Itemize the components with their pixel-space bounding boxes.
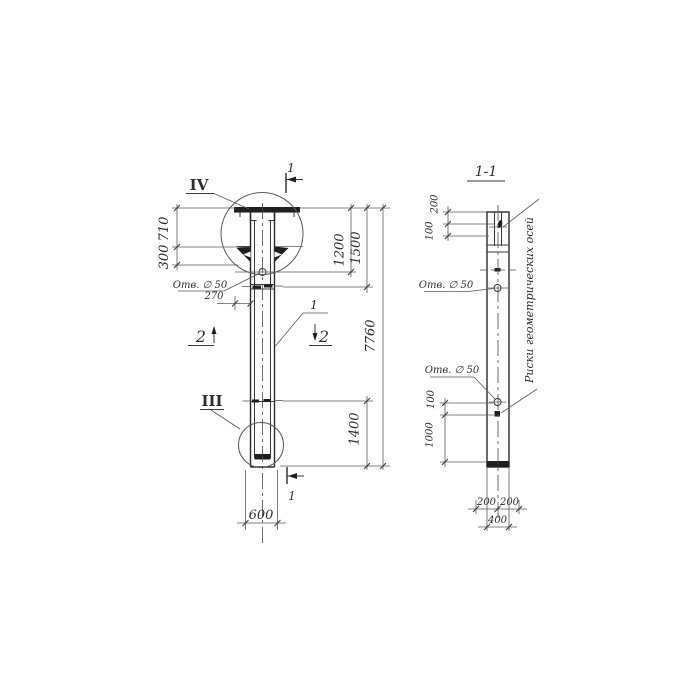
dim-1200-text: 1200 [333, 233, 348, 266]
dim-1000-text: 1000 [425, 422, 436, 448]
detail-iii-text: III [201, 392, 222, 410]
dim-300-text: 300 [157, 245, 172, 270]
section-mark-1-bottom: 1 [287, 467, 304, 503]
dim-200-top-text: 200 [430, 194, 441, 215]
dim-710-text: 710 [157, 217, 172, 242]
hole-label-elevation: Отв. ∅ 50 [173, 280, 228, 291]
hole-callout-elevation: Отв. ∅ 50 [173, 274, 259, 292]
detail-circle-iii [239, 423, 284, 468]
dim-600: 600 [237, 470, 286, 530]
dim-200-left-text: 200 [476, 497, 497, 508]
dim-chain-left: 710 300 [157, 204, 250, 270]
section-2-right-text: 2 [318, 327, 329, 346]
section-2-left-text: 2 [195, 327, 206, 346]
detail-circle-iv [221, 193, 303, 275]
dim-600-text: 600 [249, 508, 274, 523]
axes-note-text: Риски геометрических осей [523, 217, 536, 384]
hole-label-section-lower: Отв. ∅ 50 [425, 365, 480, 376]
section-1-bottom-text: 1 [288, 489, 296, 503]
section-title: 1-1 [467, 164, 505, 181]
dim-chain-section-top: 200 100 [425, 194, 495, 241]
detail-label-iii: III [200, 392, 240, 429]
dim-100-bottom-text: 100 [426, 389, 437, 409]
section-title-text: 1-1 [475, 164, 498, 180]
dim-1400-text: 1400 [348, 412, 363, 445]
hole-callout-section-upper: Отв. ∅ 50 [419, 280, 494, 292]
dim-200-right-text: 200 [499, 497, 520, 508]
detail-label-iv: IV [186, 176, 249, 209]
section-column [480, 205, 516, 521]
column-drawing: IV III 1 1 2 [0, 0, 700, 700]
technical-drawing-sheet: IV III 1 1 2 [0, 0, 700, 700]
section-mark-2-left: 2 [188, 326, 217, 346]
dim-chain-section-bottom-left: 100 1000 [425, 389, 495, 467]
dim-270: 270 [203, 291, 253, 310]
dim-chain-section-bottom: 200 200 400 [468, 467, 527, 531]
top-plate [234, 207, 300, 212]
section-1-1-view: 1-1 Отв. ∅ 50 [419, 164, 539, 531]
detail-iv-text: IV [190, 176, 209, 194]
dim-1500-text: 1500 [349, 231, 364, 264]
axes-note: Риски геометрических осей [501, 199, 539, 413]
section-mark-1-top: 1 [286, 161, 303, 193]
dim-100-top-text: 100 [425, 221, 436, 241]
bottom-risk-mark [495, 411, 501, 417]
dim-chain-right: 1200 1500 7760 1400 [280, 204, 390, 470]
dim-7760-text: 7760 [364, 319, 379, 352]
corbel-left [237, 247, 251, 263]
section-mark-2-right: 2 [309, 324, 332, 346]
dim-400-text: 400 [487, 515, 508, 526]
elevation-view: IV III 1 1 2 [157, 161, 390, 546]
dim-270-text: 270 [203, 291, 224, 302]
hole-label-section-upper: Отв. ∅ 50 [419, 280, 474, 291]
corbel-right [275, 247, 304, 263]
section-1-top-text: 1 [287, 161, 295, 175]
position-1-text: 1 [310, 298, 318, 312]
